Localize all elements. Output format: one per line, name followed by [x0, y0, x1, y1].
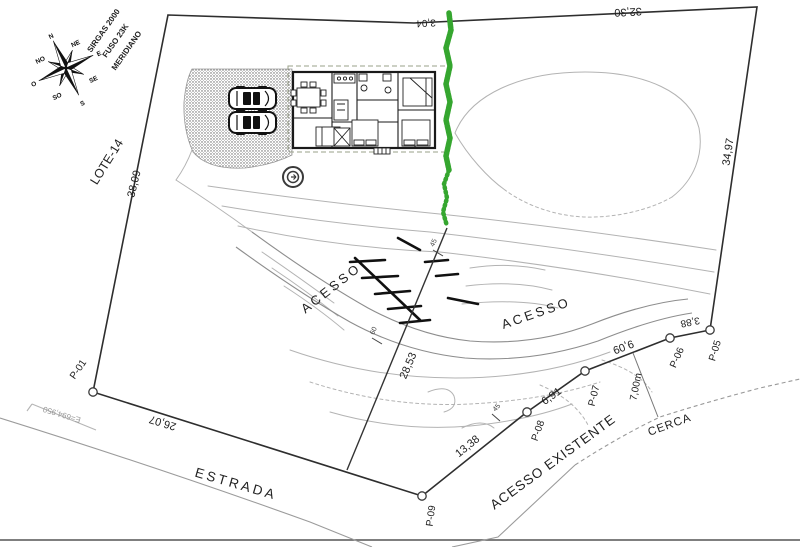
house-floor-plan — [288, 66, 448, 154]
green-path-upper — [446, 13, 451, 170]
compass-rose: N NE E SE S SO O NO — [15, 17, 119, 123]
site-plan-svg: N NE E SE S SO O NO — [0, 0, 800, 547]
marker-p09 — [418, 492, 426, 500]
compass-label-ne: NE — [70, 39, 82, 49]
compass-label-se: SE — [88, 75, 99, 85]
compass-star — [26, 28, 106, 108]
estrada-south-edge — [0, 418, 372, 547]
acesso-existente-edge — [452, 465, 575, 547]
compass-label-n: N — [48, 32, 55, 40]
cerca-fence-line — [575, 379, 800, 465]
marker-p07 — [581, 367, 589, 375]
green-path — [443, 13, 451, 226]
compass-label-o: O — [30, 80, 38, 88]
acesso-road-edges — [236, 232, 692, 359]
compass-label-no: NO — [35, 55, 47, 65]
compass-label-s: S — [79, 99, 86, 107]
compass-label-e: E — [96, 50, 103, 58]
benchmark-symbol — [283, 167, 303, 187]
fence-offset-line — [633, 353, 658, 417]
green-path-lower — [443, 170, 449, 226]
survey-point-markers — [89, 326, 714, 500]
road-lines — [0, 379, 800, 547]
compass-label-so: SO — [52, 92, 63, 102]
car-icon — [229, 110, 276, 135]
car-icon — [229, 86, 276, 111]
marker-p01 — [89, 388, 97, 396]
marker-p05 — [706, 326, 714, 334]
marker-p08 — [523, 408, 531, 416]
marker-p06 — [666, 334, 674, 342]
site-plan-canvas: N NE E SE S SO O NO SIRGAS 2000FUSO 23KM… — [0, 0, 800, 547]
grid-line — [27, 404, 96, 430]
